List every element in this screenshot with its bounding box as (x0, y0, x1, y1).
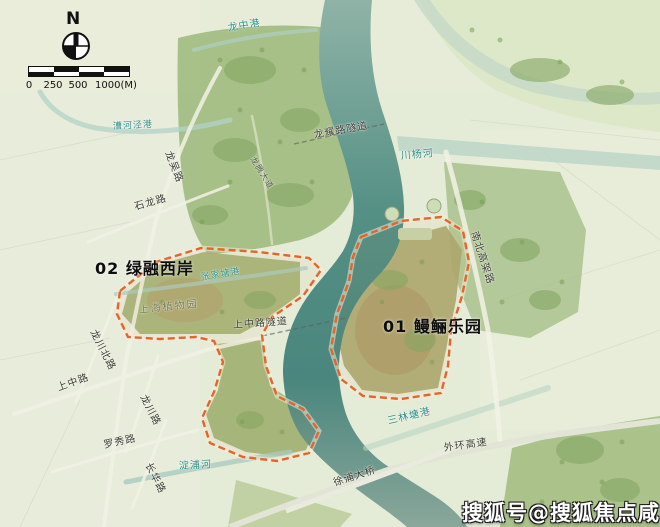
label-dianpu-river: 淀浦河 (179, 460, 212, 472)
scale-tick-1000: 1000(M) (95, 80, 137, 91)
sohu-watermark: 搜狐号@搜狐焦点咸宁站 (462, 497, 660, 527)
compass-rose-icon (59, 30, 93, 64)
scale-segment (54, 72, 79, 77)
planning-map: N 0 250 500 1000(M) 龙中港 漕河泾港 龙吴路 石龙路 龙耀路… (0, 0, 660, 527)
scale-tick-500: 500 (68, 80, 87, 91)
scale-segment (104, 72, 129, 77)
scale-tick-250: 250 (43, 80, 62, 91)
scale-segment (29, 72, 54, 77)
compass-north-label: N (66, 9, 80, 29)
scale-tick-0: 0 (26, 80, 32, 91)
scale-bar (28, 66, 130, 77)
area-02-title: 02 绿融西岸 (95, 255, 194, 279)
scale-segment (79, 72, 104, 77)
area-01-title: 01 鳗鲡乐园 (383, 313, 482, 337)
